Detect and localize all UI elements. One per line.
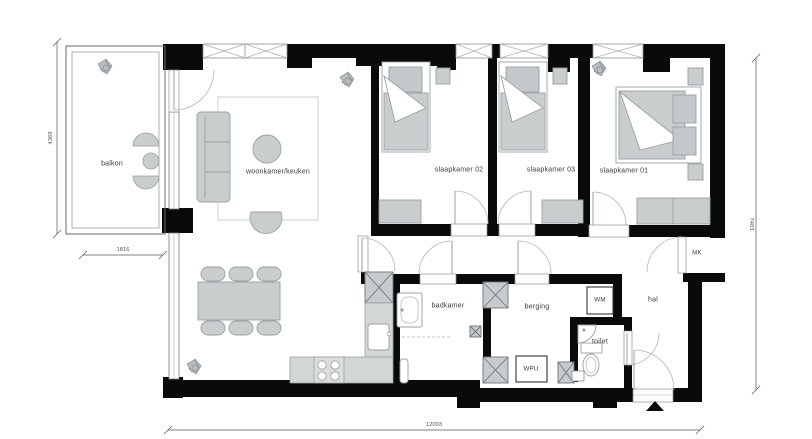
desk: [379, 200, 421, 223]
room-label-slaapkamer03: slaapkamer 03: [527, 167, 576, 174]
window-woonkamer: [203, 44, 287, 58]
room-label-toilet: toilet: [592, 339, 608, 346]
floorplan-drawing: [0, 0, 812, 439]
closet-label-mk: MK: [692, 250, 702, 257]
room-label-balkon: balkon: [101, 161, 123, 168]
dining-chair: [201, 321, 225, 335]
pillow: [673, 95, 696, 123]
slaapkamer01-door: [589, 192, 629, 237]
burner: [331, 372, 339, 380]
slaapkamer01-furniture: [616, 68, 710, 224]
dining-table: [198, 282, 280, 320]
sofa: [197, 112, 230, 202]
burner: [318, 372, 326, 380]
plant-icon: [340, 72, 354, 87]
balcony: [66, 46, 165, 234]
appliance-label-wm: WM: [594, 297, 605, 304]
appliance-label-wpu: WPU: [523, 366, 538, 373]
dining-chair: [201, 267, 225, 281]
nightstand: [688, 164, 703, 180]
room-label-badkamer: badkamer: [432, 303, 465, 310]
shaft-badkamer-bottom: [483, 357, 508, 383]
room-label-woonkamer: woonkamer/keuken: [246, 169, 310, 176]
faucet: [387, 332, 391, 336]
floorplan-page: balkon woonkamer/keuken slaapkamer 02 sl…: [0, 0, 812, 439]
dining-chair: [257, 321, 281, 335]
coffee-table: [253, 135, 281, 163]
room-label-berging: berging: [525, 304, 550, 311]
dimension-left-value: 4369: [48, 132, 54, 145]
slaapkamer03-door: [498, 191, 535, 236]
stove: [314, 357, 344, 383]
badkamer-door: [419, 241, 456, 284]
dim-left: [53, 38, 61, 238]
slaapkamer03-furniture: [499, 62, 583, 223]
burner: [331, 361, 339, 369]
slaapkamer02-furniture: [379, 62, 450, 223]
dining-chair: [229, 267, 253, 281]
corridor-door: [358, 236, 395, 272]
dimension-right-value: 7483: [748, 218, 754, 231]
berging-door: [515, 241, 551, 284]
pillow: [673, 127, 696, 155]
kitchen: [290, 303, 393, 383]
slaapkamer02-door: [451, 191, 488, 236]
desk: [542, 200, 583, 223]
plant-icon: [187, 359, 201, 374]
plant-icon: [592, 61, 606, 76]
plant-icon: [98, 59, 112, 74]
nightstand: [553, 68, 567, 84]
toilet-door: [624, 331, 659, 365]
window-slaapkamer01: [593, 44, 643, 58]
balcony-table: [143, 153, 159, 169]
radiator: [400, 359, 408, 383]
armchair: [250, 212, 282, 234]
room-label-slaapkamer02: slaapkamer 02: [435, 167, 484, 174]
room-label-slaapkamer01: slaapkamer 01: [600, 168, 649, 175]
dimension-bottom-value: 12003: [426, 422, 442, 428]
nightstand: [688, 68, 703, 85]
shaft-toilet: [558, 362, 574, 383]
kitchen-sink: [368, 324, 389, 350]
duct-badkamer: [470, 326, 481, 337]
shaft-badkamer-top: [483, 282, 508, 308]
dining-chair: [229, 321, 253, 335]
shaft-kitchen: [365, 272, 393, 303]
basin-tap: [583, 329, 586, 332]
dimension-balcony-value: 1816: [117, 247, 130, 253]
window-slaapkamer03: [500, 44, 548, 58]
balcony-chairs: [133, 133, 159, 189]
entrance-door: [633, 350, 674, 411]
toilet-cabinet: [572, 371, 584, 381]
room-label-hal: hal: [648, 297, 658, 304]
mk-door: [647, 237, 686, 273]
dining-set: [198, 267, 281, 335]
window-slaapkamer02: [456, 44, 492, 58]
balcony-door: [169, 70, 214, 112]
west-facade: [169, 112, 179, 379]
basin-tap: [400, 308, 403, 311]
dresser: [637, 198, 710, 224]
entrance-arrow-icon: [646, 401, 664, 411]
dining-chair: [257, 267, 281, 281]
nightstand: [436, 68, 450, 84]
burner: [318, 361, 326, 369]
